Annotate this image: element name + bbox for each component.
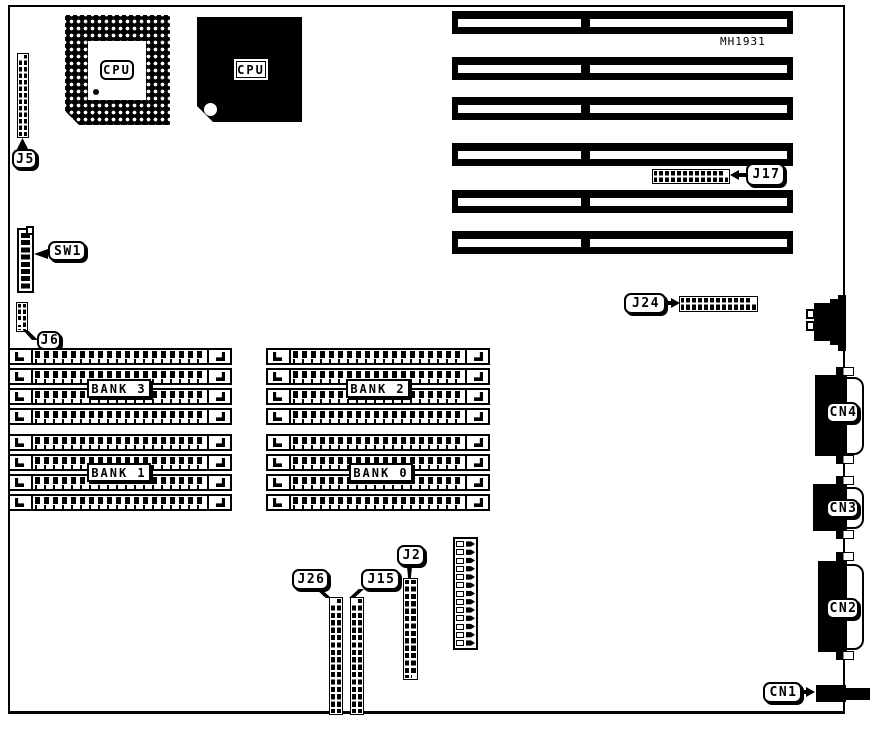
simm-clip — [15, 412, 24, 421]
simm-clip — [216, 412, 225, 421]
simm-contacts — [289, 436, 467, 449]
simm-clip — [273, 478, 282, 487]
cpu-chip-label: CPU — [236, 61, 266, 78]
simm-socket — [8, 494, 232, 511]
expansion-slot-1 — [452, 11, 793, 34]
simm-clip — [273, 352, 282, 361]
simm-clip — [474, 412, 483, 421]
edge-pin-row — [456, 599, 475, 605]
slot-segment — [590, 239, 787, 247]
pin1-marker — [18, 320, 22, 325]
part-number: MH1931 — [720, 35, 774, 47]
bank2-label: BANK 2 — [346, 379, 410, 398]
j5-label: J5 — [12, 149, 37, 169]
simm-clip — [216, 438, 225, 447]
slot-segment — [590, 19, 787, 27]
cn2-mount-tab — [836, 651, 854, 660]
simm-clip — [15, 352, 24, 361]
cn3-label: CN3 — [826, 499, 859, 518]
slot-segment — [590, 105, 787, 113]
expansion-slot-6 — [452, 231, 793, 254]
simm-clip — [273, 498, 282, 507]
cn4-mount-tab — [836, 455, 854, 464]
pin1-marker — [412, 673, 416, 678]
edge-pin-row — [456, 607, 475, 613]
simm-contacts — [31, 436, 209, 449]
cpu-socket-center: CPU — [88, 41, 146, 100]
cn3-mount-tab — [836, 530, 854, 539]
edge-pin-row — [456, 558, 475, 564]
j15-connector — [350, 597, 364, 715]
cn4-mount-tab — [836, 367, 854, 376]
simm-clip — [474, 438, 483, 447]
edge-pin-row — [456, 541, 475, 547]
pin1-marker — [19, 55, 23, 59]
expansion-slot-2 — [452, 57, 793, 80]
j26-connector — [329, 597, 343, 715]
slot-segment — [590, 151, 787, 159]
slot-segment — [590, 65, 787, 73]
simm-contacts — [31, 350, 209, 363]
simm-clip — [273, 458, 282, 467]
cpu-socket: CPU — [65, 15, 170, 125]
edge-pin-row — [456, 632, 475, 638]
cn1-label: CN1 — [763, 682, 802, 703]
cn3-mount-tab — [836, 476, 854, 485]
edge-pin-row — [456, 591, 475, 597]
simm-contacts — [289, 410, 467, 423]
edge-pin-row — [456, 549, 475, 555]
simm-socket — [266, 494, 490, 511]
edge-pin-row — [456, 574, 475, 580]
simm-socket — [8, 408, 232, 425]
simm-clip — [15, 438, 24, 447]
keyboard-din-connector — [814, 303, 831, 341]
simm-clip — [15, 498, 24, 507]
simm-clip — [216, 352, 225, 361]
simm-clip — [15, 458, 24, 467]
simm-socket — [8, 348, 232, 365]
j17-label: J17 — [746, 163, 785, 186]
din-mount-hole — [806, 321, 815, 331]
cn1-connector-plug — [846, 688, 870, 700]
simm-clip — [474, 392, 483, 401]
slot-segment — [458, 198, 581, 206]
slot-segment — [458, 239, 581, 247]
simm-clip — [474, 498, 483, 507]
simm-clip — [273, 392, 282, 401]
j15-label: J15 — [361, 569, 400, 590]
pin1-marker — [331, 599, 335, 603]
keyboard-din-connector — [838, 295, 846, 351]
expansion-slot-4 — [452, 143, 793, 166]
edge-pin-row — [456, 640, 475, 646]
cn2-mount-tab — [836, 552, 854, 561]
pin1-dot-icon — [93, 89, 99, 95]
cn2-label: CN2 — [826, 598, 859, 619]
simm-socket — [8, 434, 232, 451]
simm-contacts — [289, 350, 467, 363]
j2-label: J2 — [397, 545, 425, 566]
motherboard-diagram: J5 CPU CPU MH1931 J17 SW1 J6 J24 — [0, 0, 872, 729]
simm-socket — [266, 408, 490, 425]
sw1-corner-nub — [26, 226, 34, 235]
simm-clip — [216, 392, 225, 401]
j24-connector — [679, 296, 758, 312]
cn1-connector — [816, 685, 846, 702]
simm-clip — [216, 498, 225, 507]
edge-pin-row — [456, 566, 475, 572]
edge-pin-row — [456, 615, 475, 621]
simm-clip — [216, 478, 225, 487]
din-mount-hole — [806, 309, 815, 319]
simm-clip — [273, 438, 282, 447]
j5-connector — [17, 53, 29, 138]
simm-clip — [15, 478, 24, 487]
simm-contacts — [289, 496, 467, 509]
j26-label: J26 — [292, 569, 329, 590]
j24-label: J24 — [624, 293, 666, 314]
simm-clip — [474, 352, 483, 361]
edge-connector — [453, 537, 478, 650]
bank3-label: BANK 3 — [87, 379, 151, 398]
j6-connector — [16, 302, 28, 332]
slot-segment — [458, 19, 581, 27]
expansion-slot-3 — [452, 97, 793, 120]
simm-contacts — [31, 410, 209, 423]
cpu-socket-label: CPU — [100, 60, 134, 80]
simm-clip — [474, 372, 483, 381]
slot-segment — [590, 198, 787, 206]
simm-clip — [273, 412, 282, 421]
bank0-label: BANK 0 — [349, 463, 413, 482]
pin1-marker — [752, 298, 756, 303]
j17-connector — [652, 169, 730, 184]
dip-switch-cells — [21, 233, 30, 290]
simm-contacts — [31, 496, 209, 509]
simm-clip — [15, 372, 24, 381]
simm-socket — [266, 434, 490, 451]
cn4-label: CN4 — [826, 402, 859, 423]
cpu-chip: CPU — [197, 17, 302, 122]
simm-clip — [216, 458, 225, 467]
simm-clip — [15, 392, 24, 401]
bank1-label: BANK 1 — [87, 463, 151, 482]
pin1-dot-icon — [204, 103, 217, 116]
slot-segment — [458, 151, 581, 159]
simm-clip — [216, 372, 225, 381]
simm-socket — [266, 348, 490, 365]
pin1-marker — [724, 171, 728, 176]
cn1-arrow-icon — [806, 687, 815, 697]
simm-clip — [273, 372, 282, 381]
edge-pin-row — [456, 624, 475, 630]
sw1-label: SW1 — [48, 241, 86, 261]
pin1-marker — [352, 599, 356, 603]
simm-clip — [474, 478, 483, 487]
expansion-slot-5 — [452, 190, 793, 213]
j2-connector — [403, 578, 418, 680]
sw1-dip-switch — [17, 228, 34, 293]
slot-segment — [458, 65, 581, 73]
edge-pin-row — [456, 582, 475, 588]
slot-segment — [458, 105, 581, 113]
simm-clip — [474, 458, 483, 467]
